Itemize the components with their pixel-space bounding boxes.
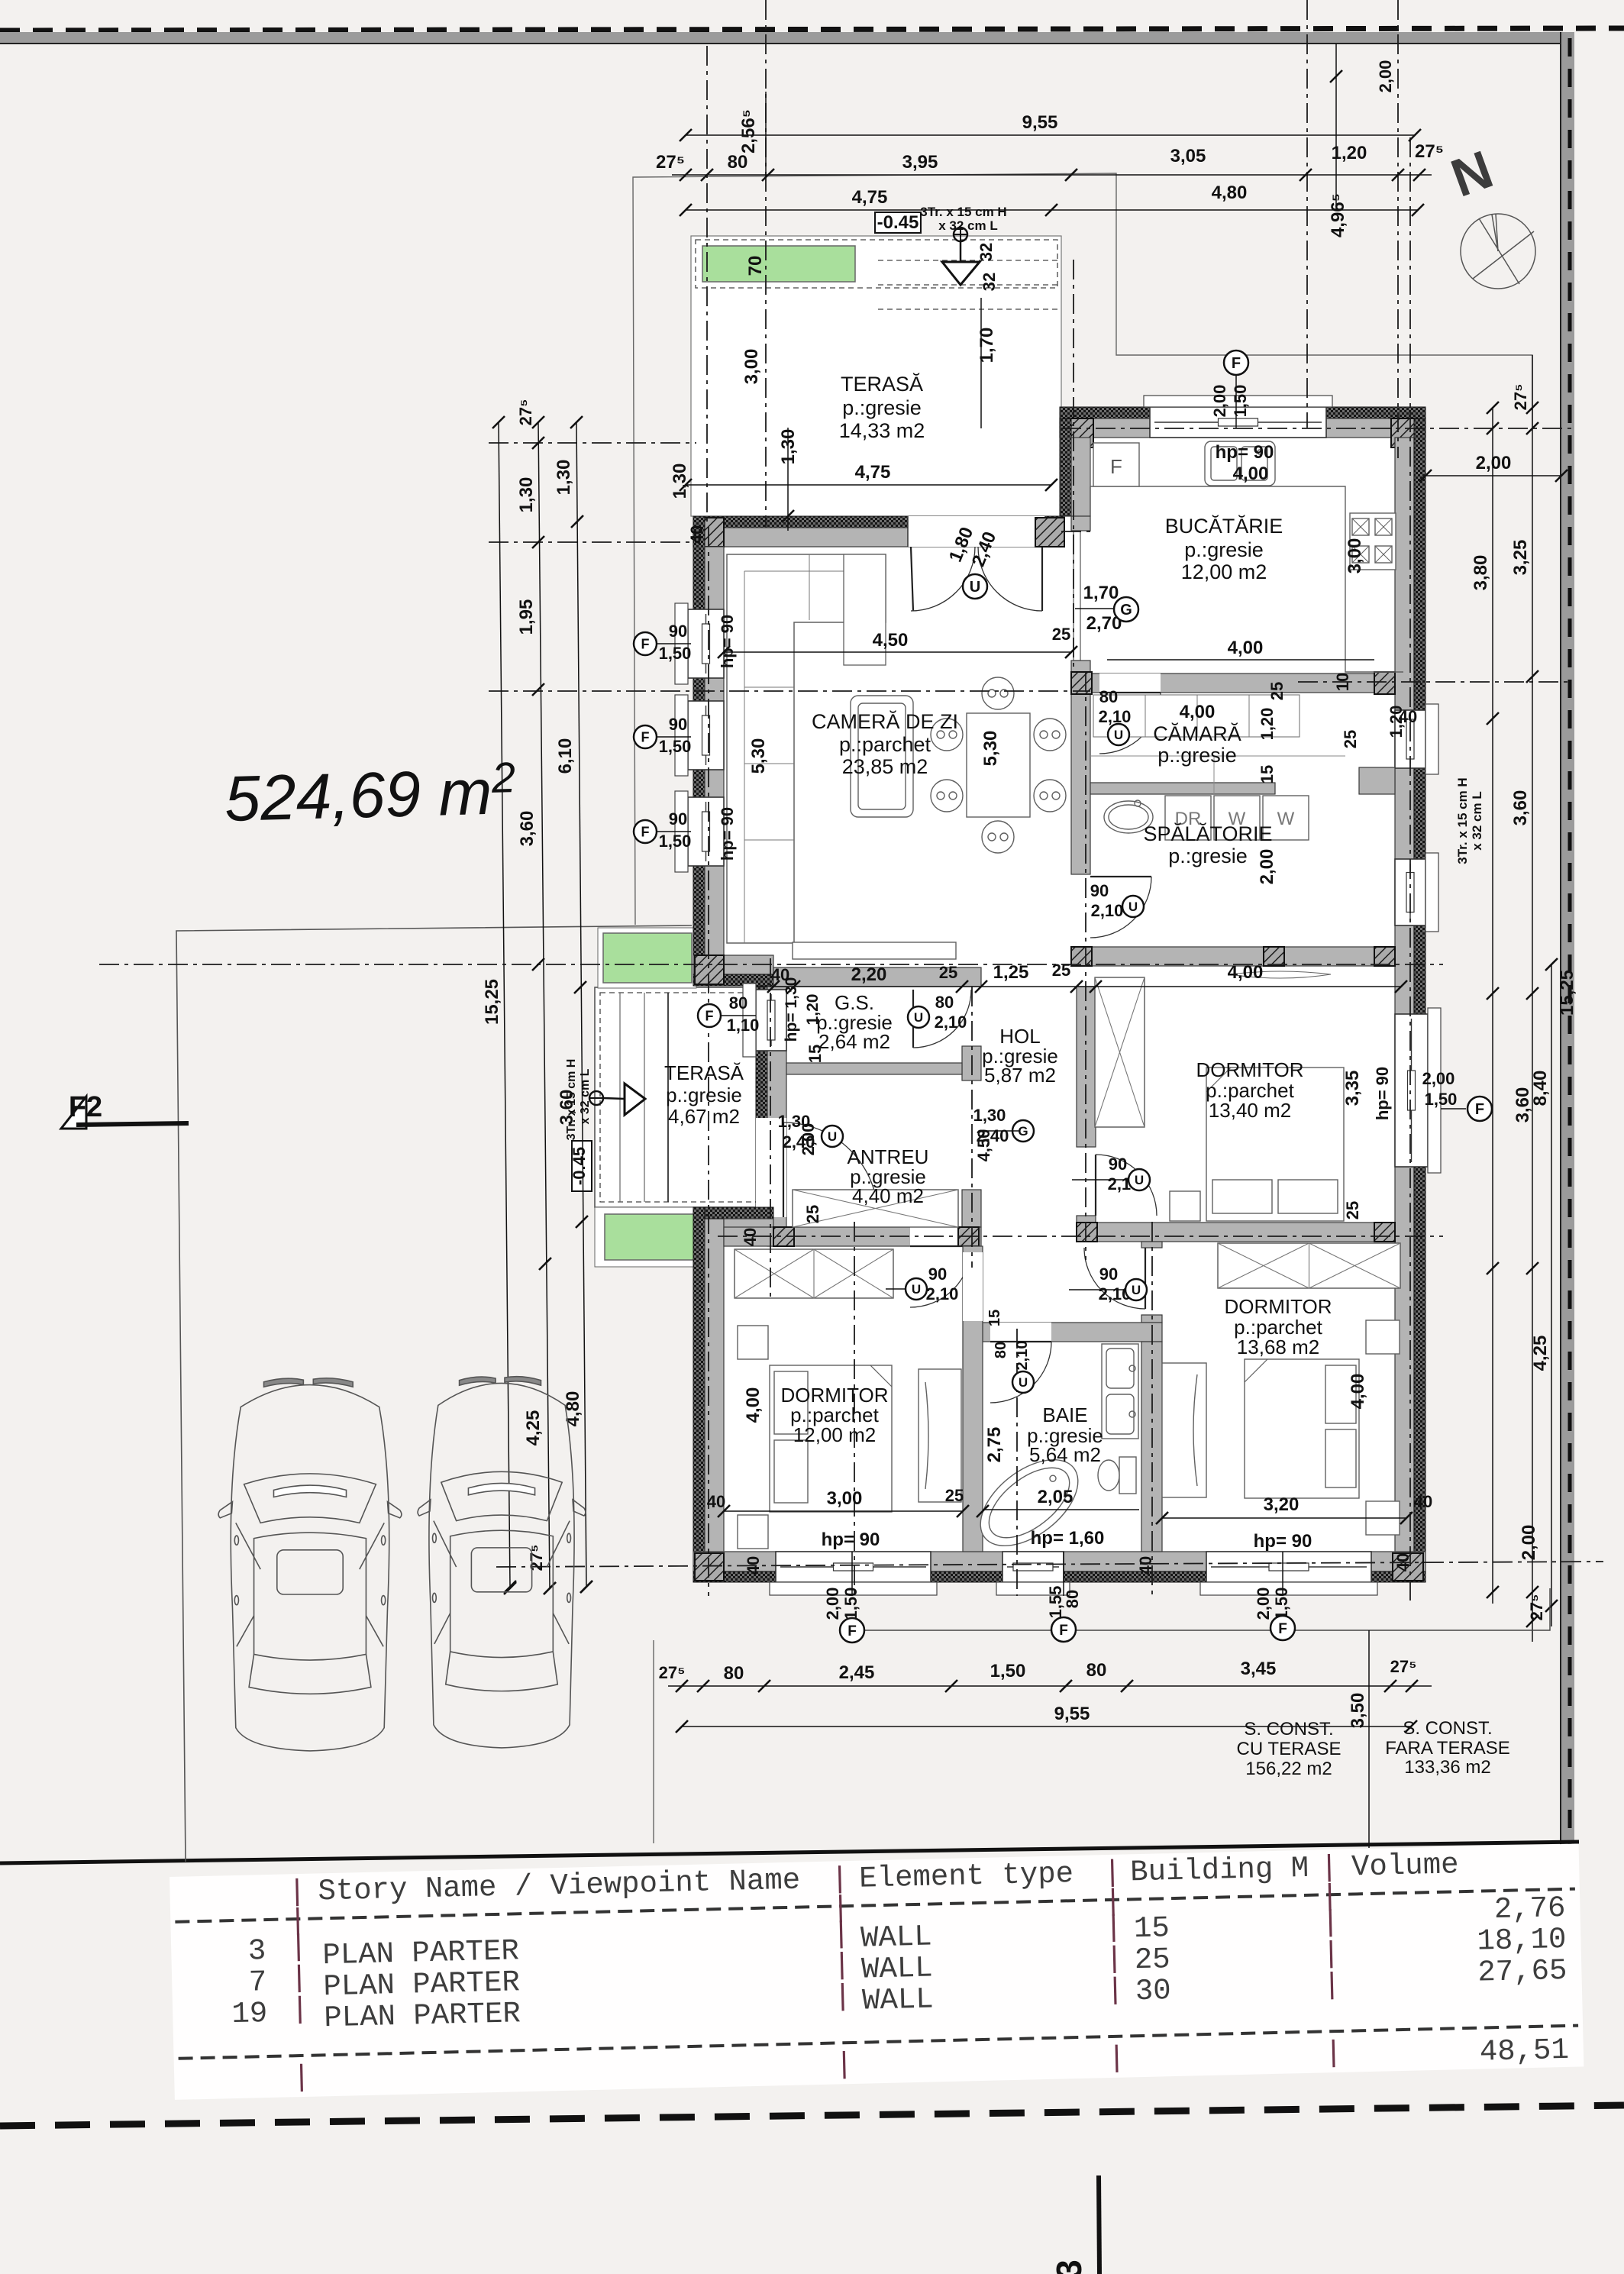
svg-text:F: F xyxy=(705,1008,714,1023)
svg-text:4,75: 4,75 xyxy=(855,462,891,483)
svg-text:U: U xyxy=(970,579,980,596)
svg-text:CU TERASE: CU TERASE xyxy=(1237,1739,1341,1759)
svg-text:-0.45: -0.45 xyxy=(570,1147,589,1185)
svg-text:4,00: 4,00 xyxy=(1348,1374,1368,1410)
svg-text:6,10: 6,10 xyxy=(555,738,576,774)
svg-text:BAIE: BAIE xyxy=(1042,1403,1087,1426)
svg-text:3Tr. x 15 cm H: 3Tr. x 15 cm H xyxy=(920,205,1006,219)
svg-text:Element type: Element type xyxy=(859,1857,1074,1896)
svg-text:hp= 90: hp= 90 xyxy=(1373,1067,1392,1120)
svg-text:1,50: 1,50 xyxy=(659,832,692,851)
svg-text:13,68 m2: 13,68 m2 xyxy=(1237,1336,1319,1358)
svg-text:25: 25 xyxy=(1341,730,1360,748)
svg-text:40: 40 xyxy=(687,525,706,544)
svg-text:90: 90 xyxy=(669,809,687,829)
svg-text:27⁵: 27⁵ xyxy=(1390,1657,1417,1676)
svg-text:80: 80 xyxy=(728,152,748,173)
svg-text:4,00: 4,00 xyxy=(1228,638,1264,658)
svg-text:G: G xyxy=(1120,602,1132,619)
svg-text:p.:gresie: p.:gresie xyxy=(666,1084,742,1106)
svg-text:2,45: 2,45 xyxy=(839,1662,875,1683)
svg-text:|: | xyxy=(1106,1974,1124,2008)
svg-text:|: | xyxy=(292,2061,311,2095)
svg-text:WALL: WALL xyxy=(861,1951,934,1986)
svg-text:|: | xyxy=(1322,1969,1341,2003)
svg-text:25: 25 xyxy=(945,1486,964,1505)
svg-text:|: | xyxy=(1322,1937,1340,1972)
svg-text:p.:parchet: p.:parchet xyxy=(839,733,931,756)
svg-text:FARA TERASE: FARA TERASE xyxy=(1385,1738,1510,1759)
svg-text:2,10: 2,10 xyxy=(1014,1341,1031,1371)
svg-text:3,80: 3,80 xyxy=(1471,555,1491,591)
svg-text:40: 40 xyxy=(1399,707,1417,726)
svg-text:1,50: 1,50 xyxy=(1231,385,1250,418)
svg-text:2,10: 2,10 xyxy=(926,1284,959,1303)
svg-text:3,95: 3,95 xyxy=(902,152,938,173)
svg-text:x 32 cm L: x 32 cm L xyxy=(938,218,998,233)
svg-text:4,96⁵: 4,96⁵ xyxy=(1328,193,1348,237)
svg-text:x 32 cm L: x 32 cm L xyxy=(579,1068,592,1124)
svg-text:4,00: 4,00 xyxy=(1228,962,1264,983)
svg-text:9,55: 9,55 xyxy=(1022,112,1058,133)
svg-text:|: | xyxy=(1105,1943,1123,1977)
svg-text:2,10: 2,10 xyxy=(1099,707,1132,726)
svg-text:1,50: 1,50 xyxy=(841,1588,860,1620)
svg-text:2,00: 2,00 xyxy=(1257,849,1277,885)
svg-text:|: | xyxy=(835,2048,854,2082)
svg-text:40: 40 xyxy=(1136,1556,1155,1575)
svg-text:2,76: 2,76 xyxy=(1493,1891,1566,1927)
svg-text:1,50: 1,50 xyxy=(659,644,692,663)
svg-text:1,30: 1,30 xyxy=(670,464,690,499)
svg-text:2,10: 2,10 xyxy=(1091,901,1124,920)
svg-text:U: U xyxy=(914,1010,923,1025)
svg-text:CAMERĂ DE ZI: CAMERĂ DE ZI xyxy=(812,710,958,733)
svg-text:80: 80 xyxy=(935,993,954,1012)
svg-text:4,40 m2: 4,40 m2 xyxy=(852,1184,924,1207)
svg-text:W: W xyxy=(1277,809,1295,829)
svg-text:32: 32 xyxy=(980,273,999,291)
svg-text:90: 90 xyxy=(1109,1155,1127,1174)
svg-text:3,00: 3,00 xyxy=(1345,538,1365,574)
svg-text:40: 40 xyxy=(1393,1553,1413,1571)
svg-text:5,87 m2: 5,87 m2 xyxy=(984,1064,1056,1087)
svg-text:BUCĂTĂRIE: BUCĂTĂRIE xyxy=(1165,515,1283,538)
svg-text:10: 10 xyxy=(1333,673,1352,691)
svg-text:1,30: 1,30 xyxy=(516,477,537,513)
svg-text:4,75: 4,75 xyxy=(852,187,888,208)
svg-text:1,50: 1,50 xyxy=(1425,1090,1458,1109)
svg-text:5,64 m2: 5,64 m2 xyxy=(1029,1443,1101,1466)
svg-text:CĂMARĂ: CĂMARĂ xyxy=(1153,722,1241,745)
svg-text:8,40: 8,40 xyxy=(1530,1071,1551,1106)
svg-text:2,00: 2,00 xyxy=(1254,1588,1273,1620)
svg-text:p.:gresie: p.:gresie xyxy=(1184,538,1264,561)
svg-text:25: 25 xyxy=(939,963,957,982)
svg-text:2,64 m2: 2,64 m2 xyxy=(818,1030,890,1053)
svg-text:3,00: 3,00 xyxy=(741,349,762,385)
svg-text:14,33 m2: 14,33 m2 xyxy=(839,419,925,442)
svg-text:F: F xyxy=(1475,1101,1484,1118)
svg-text:4,50: 4,50 xyxy=(974,1129,993,1162)
svg-text:4,00: 4,00 xyxy=(743,1387,764,1423)
svg-text:S. CONST.: S. CONST. xyxy=(1403,1718,1492,1739)
svg-text:TERASĂ: TERASĂ xyxy=(841,373,923,396)
svg-text:p.:gresie: p.:gresie xyxy=(1168,845,1248,867)
svg-text:U: U xyxy=(1128,900,1138,914)
svg-text:27⁵: 27⁵ xyxy=(1527,1594,1546,1621)
svg-text:-0.45: -0.45 xyxy=(877,212,919,233)
svg-text:WALL: WALL xyxy=(860,1920,933,1955)
svg-text:156,22 m2: 156,22 m2 xyxy=(1245,1759,1332,1779)
svg-text:1,50: 1,50 xyxy=(990,1661,1026,1681)
svg-text:F: F xyxy=(1059,1623,1068,1639)
svg-text:2,00: 2,00 xyxy=(1519,1525,1539,1561)
svg-text:15,25: 15,25 xyxy=(1557,970,1577,1016)
svg-text:40: 40 xyxy=(744,1556,763,1575)
svg-text:Volume: Volume xyxy=(1351,1848,1459,1884)
svg-text:25: 25 xyxy=(1052,625,1070,644)
svg-text:hp= 1,60: hp= 1,60 xyxy=(1031,1528,1105,1549)
svg-text:x 32 cm L: x 32 cm L xyxy=(1470,791,1484,851)
svg-text:32: 32 xyxy=(977,243,996,261)
svg-text:27,65: 27,65 xyxy=(1477,1954,1567,1990)
svg-text:9,55: 9,55 xyxy=(1054,1704,1090,1724)
svg-text:TERASĂ: TERASĂ xyxy=(664,1061,744,1084)
svg-text:hp= 90: hp= 90 xyxy=(718,807,737,861)
svg-text:40: 40 xyxy=(741,1228,760,1246)
svg-text:18,10: 18,10 xyxy=(1477,1923,1567,1959)
svg-text:25: 25 xyxy=(1134,1943,1170,1977)
svg-text:25: 25 xyxy=(1267,682,1287,700)
svg-text:15: 15 xyxy=(806,1045,825,1063)
svg-text:48,51: 48,51 xyxy=(1479,2033,1569,2069)
svg-text:F2: F2 xyxy=(69,1091,102,1123)
svg-text:1,70: 1,70 xyxy=(977,328,997,363)
svg-text:90: 90 xyxy=(669,622,687,641)
svg-text:hp= 90: hp= 90 xyxy=(718,615,737,668)
svg-text:3,60: 3,60 xyxy=(557,1090,577,1126)
svg-text:Building M: Building M xyxy=(1130,1852,1309,1890)
svg-text:133,36 m2: 133,36 m2 xyxy=(1404,1757,1490,1778)
svg-text:PLAN PARTER: PLAN PARTER xyxy=(324,1997,521,2035)
svg-text:12,00 m2: 12,00 m2 xyxy=(793,1423,876,1446)
svg-text:4,25: 4,25 xyxy=(1530,1336,1551,1371)
svg-text:|: | xyxy=(832,1949,851,1983)
svg-text:80: 80 xyxy=(993,1342,1009,1358)
svg-text:|: | xyxy=(1321,1906,1339,1940)
svg-text:|: | xyxy=(1107,2042,1125,2076)
svg-text:90: 90 xyxy=(1099,1265,1118,1284)
svg-text:2,20: 2,20 xyxy=(851,964,887,985)
svg-text:hp= 90: hp= 90 xyxy=(1216,442,1274,463)
svg-text:p.:gresie: p.:gresie xyxy=(1157,744,1237,767)
svg-text:40: 40 xyxy=(771,965,789,984)
svg-text:1,30: 1,30 xyxy=(973,1106,1006,1125)
svg-text:3,05: 3,05 xyxy=(1170,146,1206,166)
svg-text:524,69 m2: 524,69 m2 xyxy=(224,753,517,835)
svg-text:2,00: 2,00 xyxy=(1210,385,1229,418)
svg-text:5,30: 5,30 xyxy=(980,731,1001,767)
svg-text:2,05: 2,05 xyxy=(1038,1487,1074,1507)
svg-text:27⁵: 27⁵ xyxy=(1415,141,1444,162)
svg-text:27⁵: 27⁵ xyxy=(659,1663,686,1682)
svg-text:90: 90 xyxy=(1090,881,1109,900)
svg-text:80: 80 xyxy=(1099,687,1118,706)
svg-text:F: F xyxy=(1110,455,1122,478)
svg-text:U: U xyxy=(828,1129,837,1144)
svg-text:15: 15 xyxy=(986,1310,1003,1326)
svg-text:2,00: 2,00 xyxy=(1476,453,1512,473)
svg-text:13,40 m2: 13,40 m2 xyxy=(1209,1099,1291,1122)
svg-text:3: 3 xyxy=(247,1934,266,1969)
svg-text:4,25: 4,25 xyxy=(523,1410,544,1446)
svg-text:4,00: 4,00 xyxy=(1180,702,1216,722)
svg-text:3,20: 3,20 xyxy=(1264,1494,1300,1515)
svg-text:40: 40 xyxy=(707,1492,725,1511)
svg-text:|: | xyxy=(291,1993,309,2027)
svg-text:2,00: 2,00 xyxy=(799,1123,818,1156)
svg-text:1,95: 1,95 xyxy=(516,599,537,635)
svg-text:80: 80 xyxy=(1086,1660,1107,1681)
svg-text:3,35: 3,35 xyxy=(1342,1071,1363,1106)
svg-text:|: | xyxy=(832,1917,851,1952)
svg-text:15,25: 15,25 xyxy=(482,979,502,1025)
svg-text:80: 80 xyxy=(724,1663,744,1684)
svg-text:7: 7 xyxy=(248,1966,266,2000)
svg-text:4,67 m2: 4,67 m2 xyxy=(668,1105,740,1128)
svg-text:4,80: 4,80 xyxy=(1212,183,1248,203)
svg-text:70: 70 xyxy=(745,256,766,276)
svg-text:3,00: 3,00 xyxy=(827,1488,863,1509)
svg-text:1,30: 1,30 xyxy=(554,460,574,496)
svg-text:2,10: 2,10 xyxy=(935,1013,967,1032)
svg-text:DORMITOR: DORMITOR xyxy=(1196,1058,1303,1081)
svg-text:2,56⁵: 2,56⁵ xyxy=(738,109,759,153)
svg-text:F: F xyxy=(848,1623,857,1639)
svg-text:3,60: 3,60 xyxy=(1510,790,1531,826)
svg-text:U: U xyxy=(1114,728,1123,742)
svg-text:2,75: 2,75 xyxy=(984,1427,1005,1463)
svg-text:U: U xyxy=(1135,1173,1144,1187)
svg-text:27⁵: 27⁵ xyxy=(1511,384,1530,411)
svg-text:|: | xyxy=(1104,1911,1122,1946)
svg-text:3,45: 3,45 xyxy=(1241,1659,1277,1679)
svg-text:3: 3 xyxy=(1049,2259,1089,2274)
svg-text:30: 30 xyxy=(1135,1974,1171,2008)
svg-text:80: 80 xyxy=(729,993,747,1013)
svg-text:23,85 m2: 23,85 m2 xyxy=(842,755,928,778)
svg-text:15: 15 xyxy=(1258,765,1277,783)
svg-text:80: 80 xyxy=(1063,1590,1082,1608)
svg-text:|: | xyxy=(289,1930,308,1965)
svg-text:12,00 m2: 12,00 m2 xyxy=(1181,560,1267,583)
svg-text:25: 25 xyxy=(1343,1201,1362,1219)
svg-text:1,20: 1,20 xyxy=(804,994,822,1026)
svg-text:1,20: 1,20 xyxy=(1258,708,1277,741)
svg-text:F: F xyxy=(641,729,650,745)
svg-text:90: 90 xyxy=(669,715,687,734)
svg-text:|: | xyxy=(1324,2037,1342,2071)
svg-text:hp= 90: hp= 90 xyxy=(822,1529,880,1550)
svg-text:4,50: 4,50 xyxy=(873,630,909,651)
svg-text:40: 40 xyxy=(1414,1492,1432,1511)
svg-text:F: F xyxy=(641,636,650,651)
svg-text:3Tr. x 15 cm H: 3Tr. x 15 cm H xyxy=(1455,777,1470,864)
svg-text:S. CONST.: S. CONST. xyxy=(1244,1719,1333,1739)
svg-text:WALL: WALL xyxy=(862,1982,935,2017)
svg-text:2,00: 2,00 xyxy=(823,1588,842,1620)
svg-text:1,10: 1,10 xyxy=(727,1016,760,1035)
svg-text:3,60: 3,60 xyxy=(517,811,538,847)
svg-text:hp= 90: hp= 90 xyxy=(1254,1531,1312,1552)
svg-text:5,30: 5,30 xyxy=(748,738,769,774)
svg-text:U: U xyxy=(912,1282,921,1297)
svg-text:U: U xyxy=(1132,1283,1141,1297)
svg-text:F: F xyxy=(641,824,650,839)
svg-text:4,00: 4,00 xyxy=(1233,464,1269,484)
svg-text:25: 25 xyxy=(1052,961,1070,980)
svg-text:25: 25 xyxy=(803,1205,822,1223)
svg-text:90: 90 xyxy=(928,1265,947,1284)
svg-text:2,00: 2,00 xyxy=(1376,60,1395,93)
svg-text:3,25: 3,25 xyxy=(1510,540,1531,576)
svg-text:DORMITOR: DORMITOR xyxy=(1224,1295,1332,1318)
svg-text:27⁵: 27⁵ xyxy=(516,399,535,426)
svg-text:|: | xyxy=(833,1980,851,2014)
svg-text:p.:gresie: p.:gresie xyxy=(842,396,922,419)
svg-text:1,50: 1,50 xyxy=(659,737,692,756)
svg-text:3,50: 3,50 xyxy=(1348,1693,1368,1729)
svg-text:|: | xyxy=(290,1962,308,1996)
svg-text:U: U xyxy=(1019,1375,1028,1390)
svg-text:19: 19 xyxy=(231,1997,268,2031)
svg-text:1,70: 1,70 xyxy=(1083,583,1119,603)
svg-text:1,25: 1,25 xyxy=(993,962,1029,983)
svg-text:SPĂLĂTORIE: SPĂLĂTORIE xyxy=(1143,822,1272,845)
svg-text:27⁵: 27⁵ xyxy=(656,152,685,173)
svg-text:15: 15 xyxy=(1133,1911,1170,1946)
svg-text:F: F xyxy=(1278,1621,1287,1637)
svg-text:F: F xyxy=(1232,355,1241,372)
svg-text:2,00: 2,00 xyxy=(1422,1069,1455,1088)
